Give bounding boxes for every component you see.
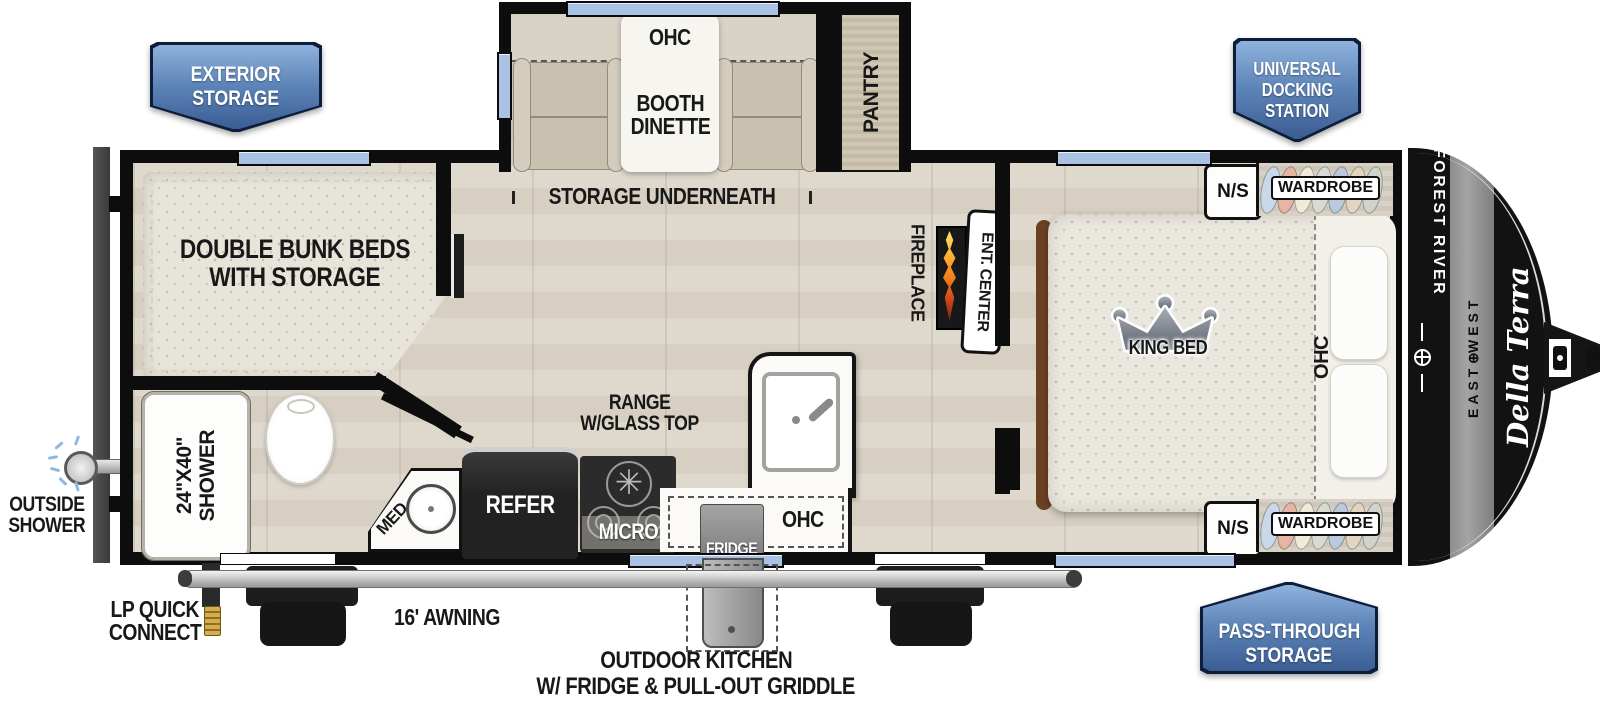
sink-icon — [406, 484, 456, 534]
entry-steps — [260, 602, 346, 646]
wardrobe-bottom: WARDROBE — [1256, 499, 1393, 552]
forest-river-label: FOREST RIVER — [1429, 148, 1447, 566]
hitch-coupler — [1586, 346, 1600, 370]
slideout-window — [566, 1, 780, 17]
fireplace-label: FIREPLACE — [908, 224, 926, 322]
model-label: Della Terra — [1496, 148, 1540, 566]
outside-shower-label: OUTSIDE SHOWER — [0, 494, 94, 537]
kitchen-sink — [762, 372, 840, 472]
dinette-bench-left — [513, 58, 623, 170]
hitch-jack — [1549, 339, 1571, 377]
bunk-right-wall — [436, 163, 451, 296]
shower: 24"x40" SHOWER — [142, 392, 250, 560]
rear-bumper — [93, 147, 110, 563]
kitchen-ohc-label: OHC — [782, 508, 824, 531]
wall-left — [120, 150, 133, 565]
refrigerator: REFER — [462, 447, 578, 559]
dinette-table: OHC BOOTH DINETTE — [621, 14, 719, 172]
nightstand-bottom: N/S — [1204, 501, 1262, 557]
faucet-icon — [807, 397, 835, 423]
dinette-ohc-label: OHC — [649, 26, 691, 49]
ns-bottom-label: N/S — [1217, 518, 1249, 540]
outdoor-kitchen-label: OUTDOOR KITCHEN W/ FRIDGE & PULL-OUT GRI… — [500, 648, 892, 701]
main-entry-door — [874, 553, 986, 565]
bedroom-partition-jog — [1010, 428, 1020, 490]
awning-cap — [178, 570, 192, 587]
ent-center-label: ENT. CENTER — [973, 232, 994, 332]
pass-through-storage-badge: PASS-THROUGH STORAGE — [1200, 582, 1378, 674]
slideout-side-window — [497, 52, 512, 120]
lp-quick-connect-label: LP QUICK CONNECT — [96, 598, 214, 645]
bunk-cabinet — [451, 234, 464, 298]
wardrobe-top: WARDROBE — [1256, 163, 1393, 216]
micro-label: MICRO — [598, 521, 657, 543]
pantry-label: PANTRY — [861, 52, 882, 133]
bedroom-window — [1056, 150, 1212, 166]
storage-underneath-label: STORAGE UNDERNEATH — [549, 185, 776, 208]
king-bed-label: KING BED — [1126, 338, 1210, 358]
entry-steps — [890, 602, 972, 646]
bedroom-partition-upper — [995, 160, 1010, 346]
wardrobe-top-label: WARDROBE — [1271, 176, 1380, 200]
awning-tube — [182, 570, 1082, 588]
ns-top-label: N/S — [1217, 181, 1249, 203]
refer-label: REFER — [485, 493, 554, 519]
exterior-storage-badge: EXTERIOR STORAGE — [150, 42, 322, 132]
universal-docking-badge: UNIVERSAL DOCKING STATION — [1233, 38, 1361, 142]
bath-wall — [133, 376, 386, 390]
awning-cap — [1066, 570, 1082, 587]
shower-label: SHOWER — [197, 430, 218, 522]
bath-entry-door — [220, 553, 336, 565]
bunk-window — [237, 150, 371, 166]
bunk-label: DOUBLE BUNK BEDS WITH STORAGE — [150, 236, 440, 291]
east-west-label: EAST⊕WEST — [1456, 148, 1490, 566]
forest-river-logo — [1414, 148, 1430, 566]
wardrobe-bottom-label: WARDROBE — [1271, 512, 1380, 536]
pantry-wall — [816, 13, 840, 172]
outdoor-fridge: FRIDGE — [700, 504, 764, 558]
burner-icon: ✳ — [606, 461, 652, 507]
compass-icon: ⊕ — [1465, 353, 1481, 365]
front-cap: FOREST RIVER EAST⊕WEST Della Terra — [1408, 148, 1553, 566]
awning-label: 16' AWNING — [392, 606, 501, 629]
passthrough-window — [1054, 553, 1236, 568]
storage-underneath: STORAGE UNDERNEATH — [512, 182, 812, 212]
slideout-wall-right — [899, 2, 911, 172]
bedroom-partition-lower — [995, 428, 1010, 494]
dinette-bench-right — [715, 58, 817, 170]
pantry: PANTRY — [840, 13, 903, 172]
med-cabinet: MED — [368, 468, 462, 552]
pillow — [1330, 246, 1388, 360]
range-label: RANGE W/GLASS TOP — [550, 392, 730, 435]
pillow — [1330, 364, 1388, 478]
toilet-icon — [265, 393, 335, 485]
rv-floorplan: OUTSIDE SHOWER DOUBLE BUNK BEDS WITH STO… — [0, 0, 1600, 705]
nightstand-top: N/S — [1204, 164, 1262, 220]
shower-size-label: 24"x40" — [174, 437, 195, 514]
